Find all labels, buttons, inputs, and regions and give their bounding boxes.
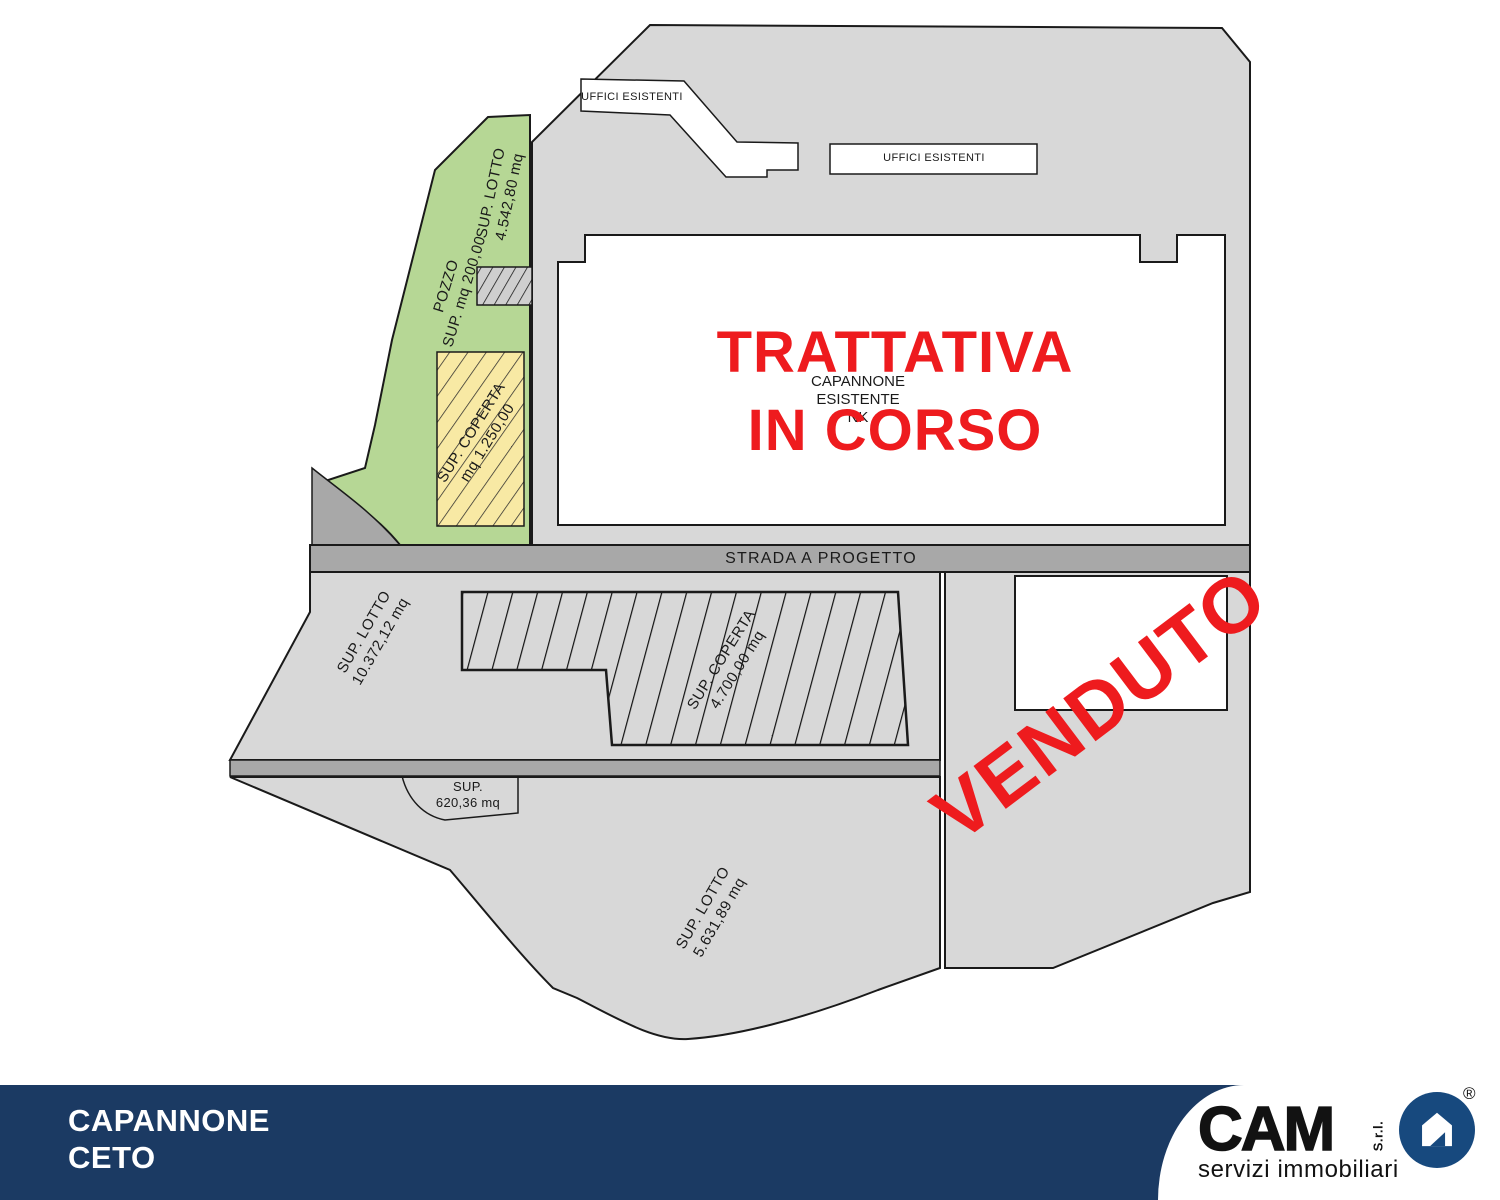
negotiation-line2: IN CORSO bbox=[717, 392, 1074, 470]
registered-trademark-icon: ® bbox=[1463, 1084, 1476, 1104]
well-area bbox=[477, 267, 532, 305]
footer-title-line2: CETO bbox=[68, 1139, 270, 1176]
footer-title-line1: CAPANNONE bbox=[68, 1102, 270, 1139]
small-lot-title: SUP. bbox=[436, 779, 500, 795]
status-negotiation-label: TRATTATIVA IN CORSO bbox=[717, 314, 1074, 470]
small-lot-label: SUP. 620,36 mq bbox=[436, 779, 500, 812]
site-plan-page: UFFICI ESISTENTI UFFICI ESISTENTI SUP. L… bbox=[0, 0, 1500, 1200]
cam-logo-srl: S.r.l. bbox=[1371, 1121, 1386, 1151]
cam-logo-text: CAM bbox=[1198, 1094, 1333, 1165]
footer-title: CAPANNONE CETO bbox=[68, 1102, 270, 1176]
cam-house-icon bbox=[1414, 1107, 1460, 1153]
road-label: STRADA A PROGETTO bbox=[725, 549, 917, 569]
negotiation-line1: TRATTATIVA bbox=[717, 314, 1074, 392]
offices-right-label: UFFICI ESISTENTI bbox=[883, 152, 985, 166]
cam-logo-tagline: servizi immobiliari bbox=[1198, 1156, 1399, 1184]
cam-logo-circle bbox=[1399, 1092, 1475, 1168]
road-strip-lower bbox=[230, 760, 940, 776]
site-plan-drawing bbox=[0, 0, 1500, 1200]
offices-left-label: UFFICI ESISTENTI bbox=[581, 91, 683, 105]
lot-bottom bbox=[230, 777, 940, 1039]
small-lot-value: 620,36 mq bbox=[436, 795, 500, 811]
